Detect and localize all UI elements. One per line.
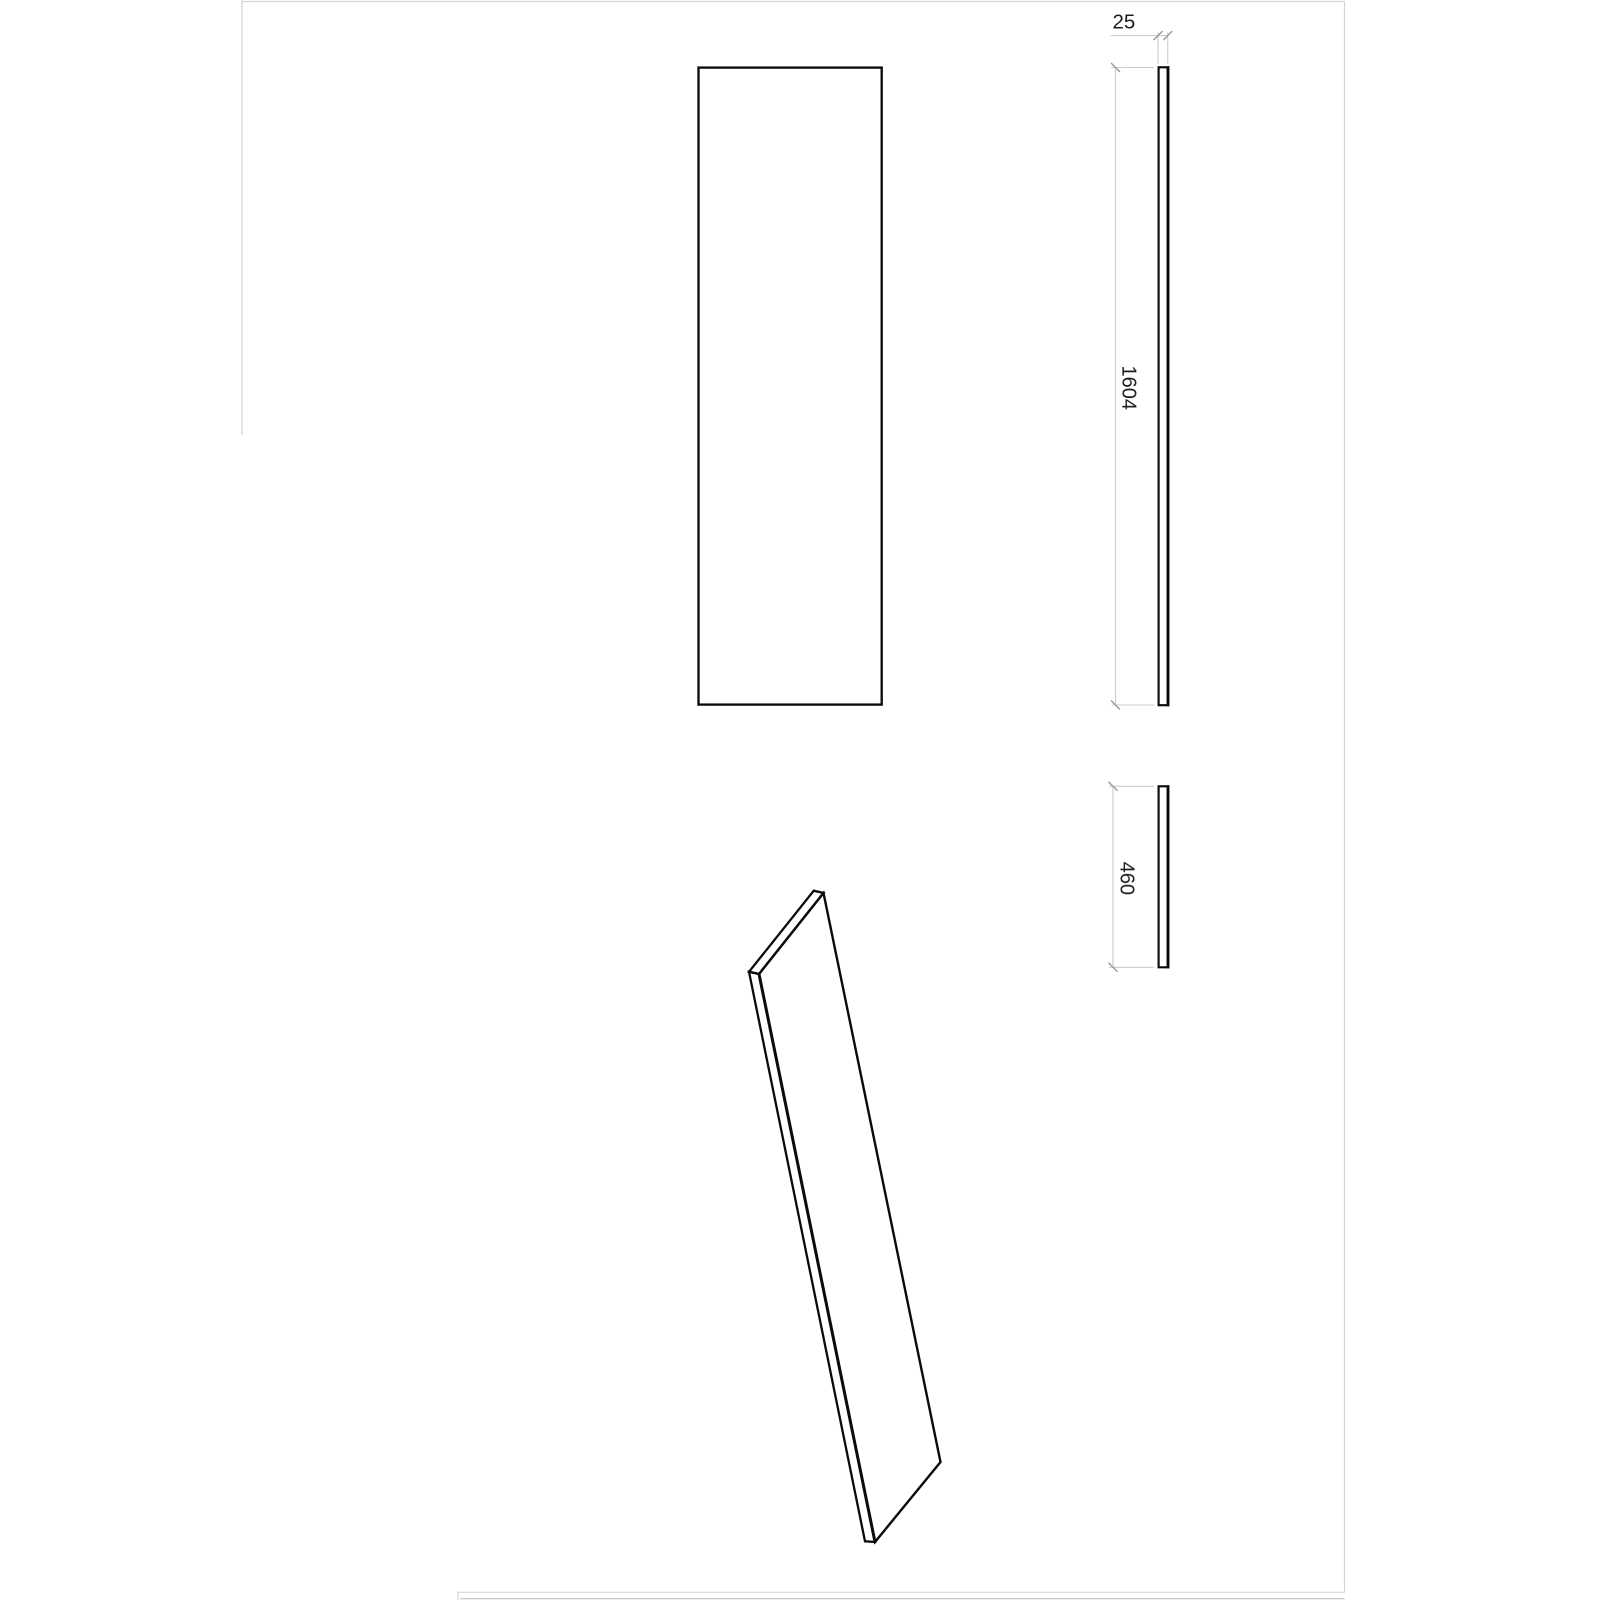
svg-text:460: 460: [1116, 862, 1138, 895]
svg-text:25: 25: [1112, 11, 1135, 34]
svg-text:1604: 1604: [1117, 366, 1139, 411]
